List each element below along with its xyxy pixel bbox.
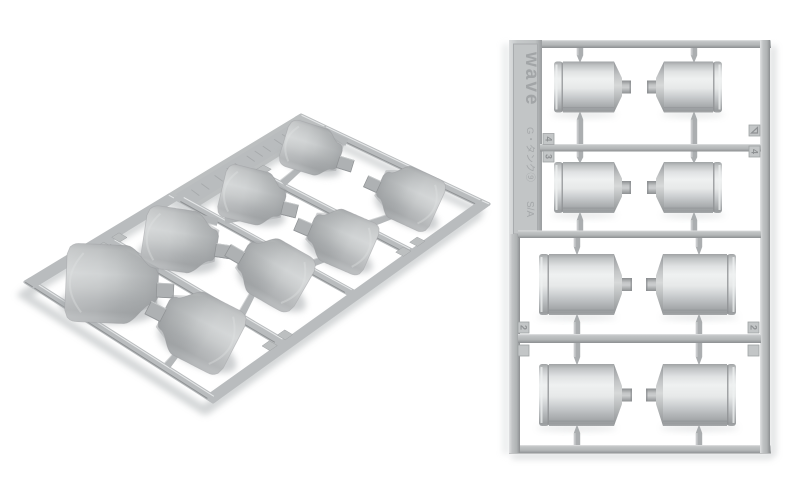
svg-text:2: 2 xyxy=(749,325,759,330)
svg-text:2: 2 xyxy=(519,325,529,330)
svg-text:4: 4 xyxy=(750,149,760,154)
svg-text:3: 3 xyxy=(544,154,554,159)
svg-text:S/A: S/A xyxy=(524,201,535,217)
svg-text:wave: wave xyxy=(521,51,542,106)
svg-text:G・タンク⑨: G・タンク⑨ xyxy=(524,127,535,182)
svg-text:4: 4 xyxy=(544,136,554,141)
